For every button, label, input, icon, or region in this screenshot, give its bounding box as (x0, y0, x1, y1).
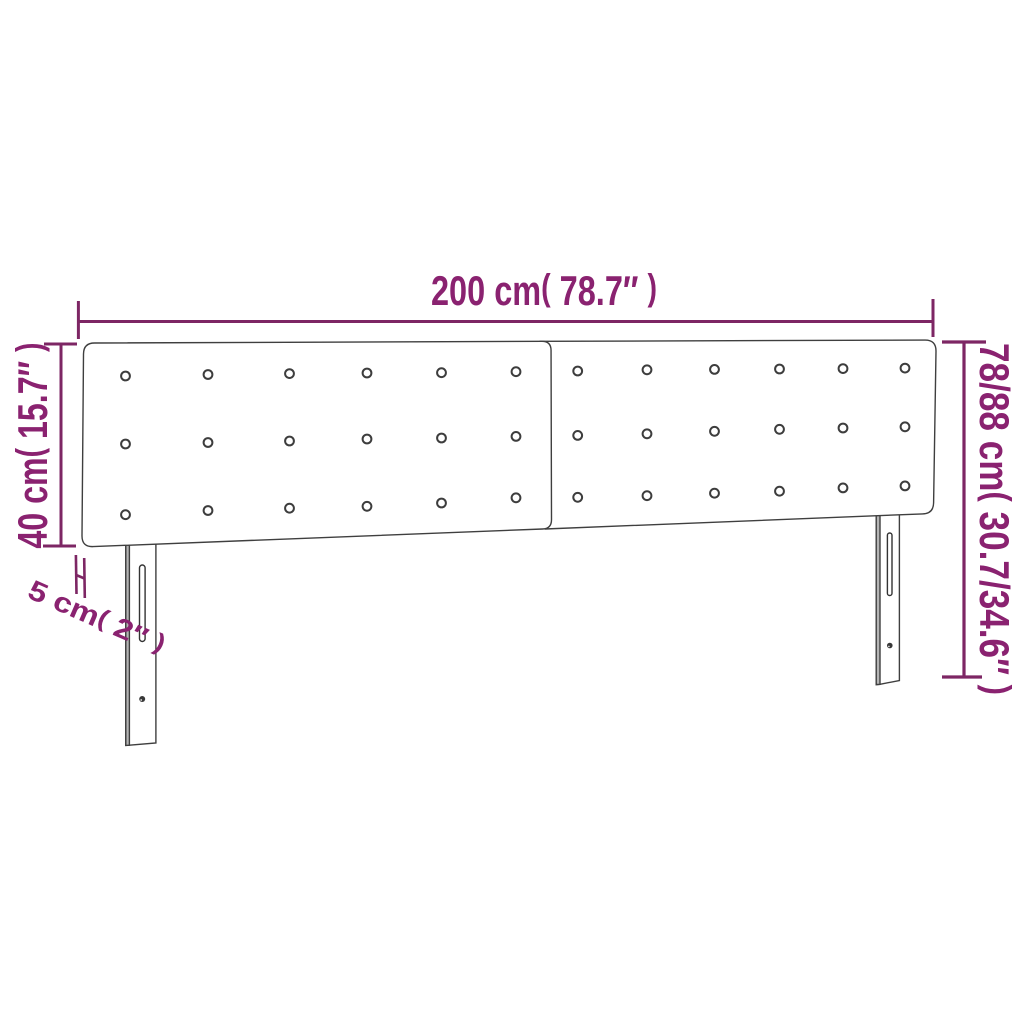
svg-text:40 cm( 15.7″ ): 40 cm( 15.7″ ) (9, 343, 56, 549)
svg-text:78/88 cm( 30.7/34.6″ ): 78/88 cm( 30.7/34.6″ ) (971, 343, 1018, 695)
svg-text:200 cm( 78.7″ ): 200 cm( 78.7″ ) (431, 267, 657, 314)
